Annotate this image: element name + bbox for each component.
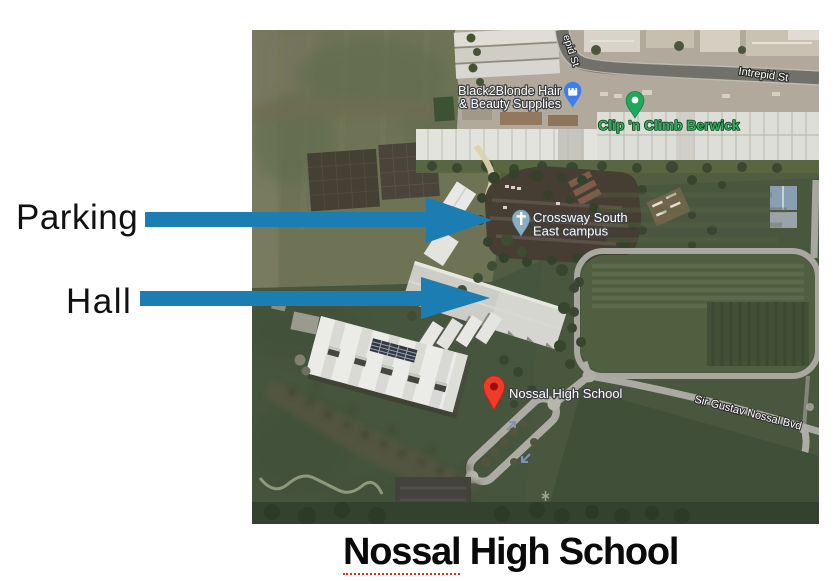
svg-text:Nossal High School: Nossal High School xyxy=(509,386,623,401)
svg-text:Black2Blonde Hair: Black2Blonde Hair xyxy=(458,84,561,98)
svg-text:Clip 'n Climb Berwick: Clip 'n Climb Berwick xyxy=(598,118,740,133)
svg-text:& Beauty Supplies: & Beauty Supplies xyxy=(459,97,561,111)
svg-text:East campus: East campus xyxy=(533,224,609,239)
